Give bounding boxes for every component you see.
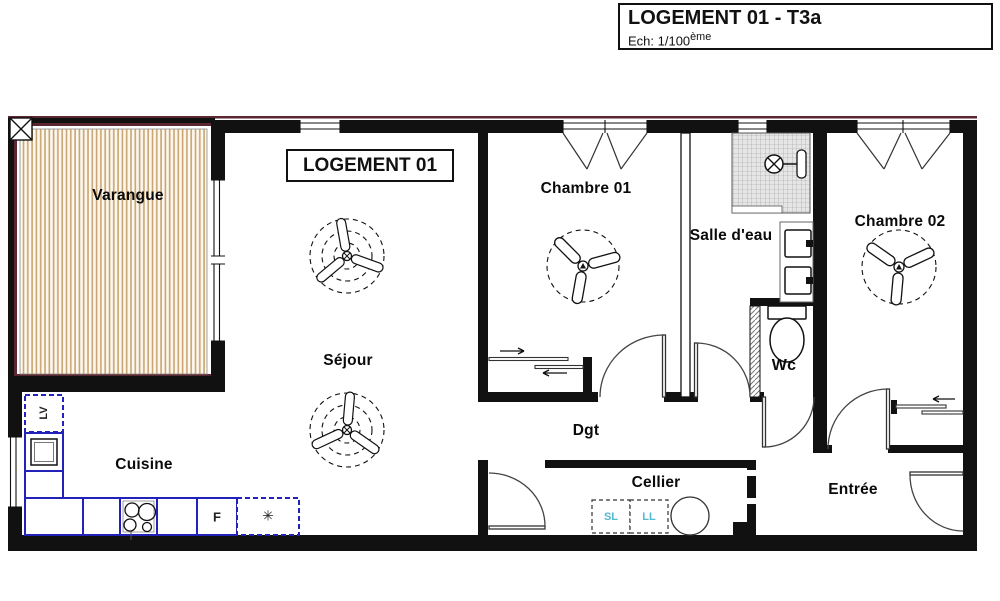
plan-scale: Ech: 1/100ème (628, 30, 983, 48)
room-label-chambre01: Chambre 01 (541, 180, 632, 198)
ceiling-fan-chambre02 (862, 230, 936, 305)
logement-label-box: LOGEMENT 01 (286, 149, 454, 182)
partition-chambre01-salle-eau (681, 133, 690, 397)
label-fridge: F (213, 510, 221, 525)
room-label-cellier: Cellier (632, 474, 681, 492)
varangue-deck-hatch (20, 129, 207, 374)
washbasins (780, 222, 813, 302)
room-label-dgt: Dgt (573, 422, 599, 440)
room-label-varangue: Varangue (92, 187, 163, 205)
room-label-salle-eau: Salle d'eau (690, 227, 773, 245)
partition-wc-hatched (750, 306, 760, 397)
ceiling-fan-sejour-1 (310, 218, 384, 293)
ceiling-fan-chambre01 (547, 230, 621, 304)
doors (489, 335, 963, 531)
floor-plan-drawing (0, 0, 1000, 601)
label-dishwasher: LV (38, 406, 50, 419)
label-washer: LL (642, 511, 655, 523)
room-label-cuisine: Cuisine (115, 456, 172, 474)
plan-title: LOGEMENT 01 - T3a (628, 6, 983, 30)
shower (732, 133, 810, 213)
toilet (768, 306, 806, 362)
scale-text: Ech: 1/100 (628, 33, 690, 48)
label-dryer: SL (604, 511, 618, 523)
room-label-entree: Entrée (828, 481, 877, 499)
title-block: LOGEMENT 01 - T3a Ech: 1/100ème (618, 3, 993, 50)
floor-plan-page: LOGEMENT 01 - T3a Ech: 1/100ème LOGEMENT… (0, 0, 1000, 601)
room-label-wc: Wc (772, 357, 796, 375)
label-freezer: ✳ (262, 508, 274, 525)
column-symbol (10, 118, 32, 140)
scale-superscript: ème (690, 31, 711, 43)
ceiling-fan-sejour-2 (310, 392, 384, 467)
room-label-chambre02: Chambre 02 (855, 213, 946, 231)
room-label-sejour: Séjour (323, 352, 372, 370)
